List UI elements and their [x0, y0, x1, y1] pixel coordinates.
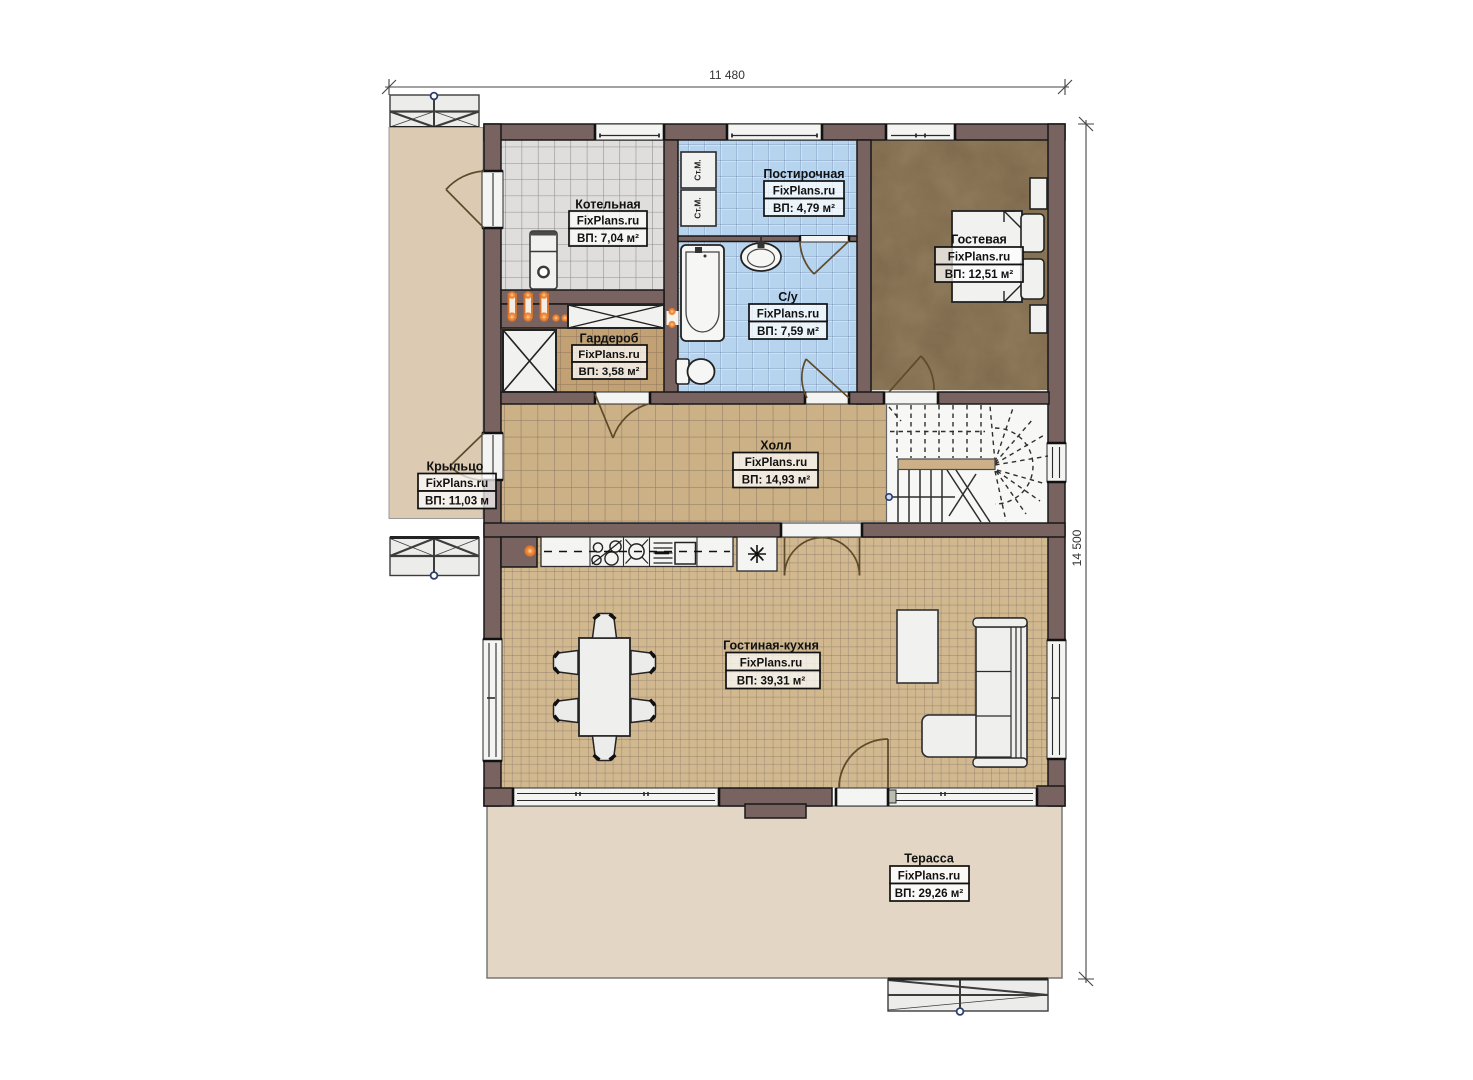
svg-text:ВП: 14,93 м²: ВП: 14,93 м²: [742, 474, 811, 487]
svg-text:FixPlans.ru: FixPlans.ru: [898, 870, 961, 883]
svg-text:14 500: 14 500: [1070, 529, 1084, 566]
svg-text:ВП: 3,58 м²: ВП: 3,58 м²: [579, 366, 640, 378]
svg-text:Ст.М.: Ст.М.: [692, 159, 702, 180]
svg-text:ВП: 29,26 м²: ВП: 29,26 м²: [895, 887, 964, 900]
svg-text:Постирочная: Постирочная: [763, 167, 844, 181]
svg-text:Гостиная-кухня: Гостиная-кухня: [723, 639, 819, 653]
svg-text:Холл: Холл: [760, 439, 791, 453]
svg-text:FixPlans.ru: FixPlans.ru: [740, 657, 803, 670]
svg-text:Гостевая: Гостевая: [951, 233, 1007, 247]
svg-text:FixPlans.ru: FixPlans.ru: [578, 349, 639, 361]
svg-text:ВП: 4,79 м²: ВП: 4,79 м²: [773, 202, 835, 215]
svg-text:FixPlans.ru: FixPlans.ru: [948, 251, 1011, 264]
svg-text:FixPlans.ru: FixPlans.ru: [773, 185, 836, 198]
svg-text:11 480: 11 480: [709, 68, 745, 82]
svg-text:Крыльцо: Крыльцо: [427, 460, 484, 474]
svg-text:Гардероб: Гардероб: [579, 332, 638, 346]
svg-text:ВП: 39,31 м²: ВП: 39,31 м²: [737, 675, 806, 688]
svg-text:Ст.М.: Ст.М.: [692, 197, 702, 218]
svg-text:ВП: 7,04 м²: ВП: 7,04 м²: [577, 232, 639, 245]
svg-text:С/у: С/у: [778, 290, 798, 304]
svg-text:ВП: 12,51 м²: ВП: 12,51 м²: [945, 268, 1014, 281]
svg-text:FixPlans.ru: FixPlans.ru: [577, 215, 640, 228]
svg-text:ВП: 7,59 м²: ВП: 7,59 м²: [757, 325, 819, 338]
svg-text:Терасса: Терасса: [904, 852, 955, 866]
svg-text:FixPlans.ru: FixPlans.ru: [757, 308, 820, 321]
svg-text:Котельная: Котельная: [575, 198, 640, 212]
svg-text:FixPlans.ru: FixPlans.ru: [426, 477, 489, 490]
svg-text:FixPlans.ru: FixPlans.ru: [745, 456, 808, 469]
svg-text:ВП: 11,03 м: ВП: 11,03 м: [425, 495, 489, 508]
